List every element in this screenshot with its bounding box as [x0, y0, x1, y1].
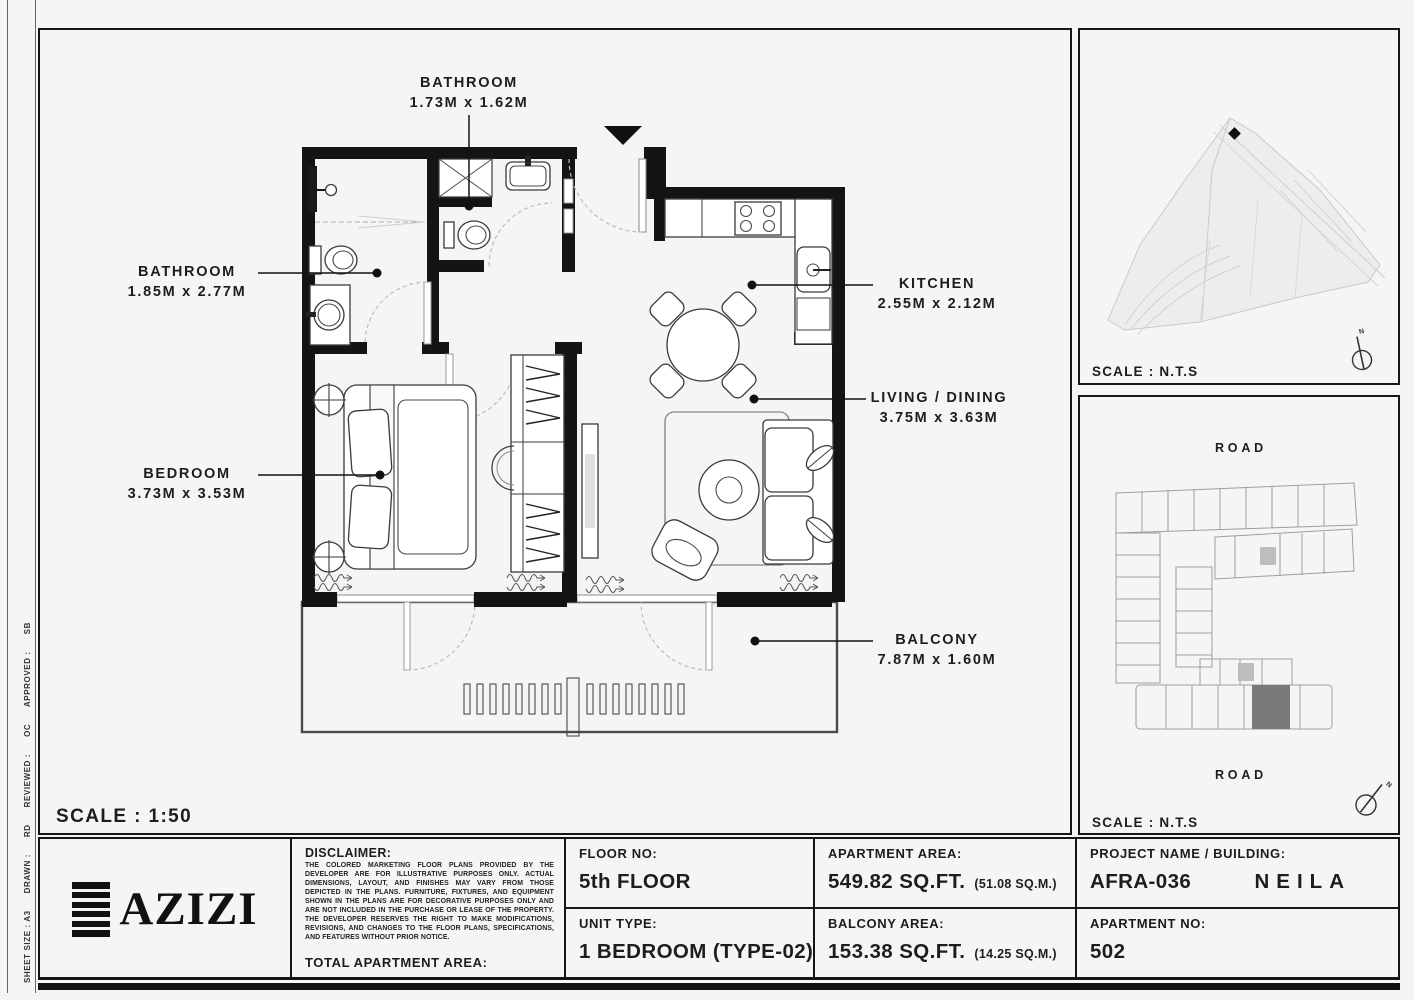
bed-icon: [344, 385, 476, 569]
sofa-icon: [763, 420, 838, 564]
svg-text:KITCHEN: KITCHEN: [899, 276, 975, 292]
logo-text: AZIZI: [119, 886, 257, 933]
curtain-symbol: [780, 575, 818, 591]
balcony-area-label: BALCONY AREA:: [828, 916, 1062, 931]
bathroom-door-leaf: [424, 282, 431, 344]
floor-plan-drawing: BATHROOM 1.73M x 1.62M BATHROOM 1.85M x …: [40, 30, 1069, 832]
sheet-meta-text: SHEET SIZE : A3 DRAWN : RD REVIEWED : OC…: [23, 622, 32, 983]
bedside-table-icon: [312, 540, 346, 574]
coffee-table-icon: [699, 460, 759, 520]
title-block: AZIZI FLOOR NO: 5th FLOOR APARTMENT AREA…: [38, 837, 1400, 980]
svg-text:1.85M x 2.77M: 1.85M x 2.77M: [128, 284, 247, 300]
armchair-icon: [648, 516, 723, 585]
floor-no-label: FLOOR NO:: [579, 846, 800, 861]
entrance-arrow-icon: [604, 126, 642, 145]
dining-table-icon: [667, 309, 739, 381]
site-map-panel: N SCALE : N.T.S: [1078, 28, 1400, 385]
disclaimer-cell: DISCLAIMER: THE COLORED MARKETING FLOOR …: [290, 839, 564, 977]
unit-type-value: 1 BEDROOM (TYPE-02): [579, 940, 800, 964]
entrance-door-leaf: [639, 159, 646, 232]
svg-text:LIVING / DINING: LIVING / DINING: [871, 390, 1008, 406]
svg-text:N: N: [1384, 781, 1392, 790]
plan-scale-label: SCALE : 1:50: [56, 806, 192, 827]
sink-icon: [506, 156, 550, 190]
floor-no-value: 5th FLOOR: [579, 870, 800, 894]
site-map-drawing: N SCALE : N.T.S: [1080, 30, 1398, 383]
svg-text:BATHROOM: BATHROOM: [138, 264, 236, 280]
core-block: [1260, 547, 1276, 565]
wall-niche: [564, 209, 573, 233]
living-room-furniture: [582, 412, 838, 584]
shower-icon: [308, 166, 317, 212]
svg-text:7.87M x 1.60M: 7.87M x 1.60M: [878, 652, 997, 668]
azizi-bars-icon: [72, 882, 110, 936]
sink-icon: [306, 285, 350, 345]
service-shaft: [439, 159, 492, 197]
north-compass-icon: N: [1352, 773, 1394, 819]
apartment-area-cell: APARTMENT AREA: 549.82 SQ.FT.(51.08 SQ.M…: [813, 839, 1075, 907]
road-label-bottom: ROAD: [1215, 768, 1267, 782]
bedroom-slider-door: [337, 595, 474, 602]
core-block: [1238, 663, 1254, 681]
sheet-bottom-rule: [38, 983, 1400, 990]
svg-text:1.73M x 1.62M: 1.73M x 1.62M: [410, 95, 529, 111]
svg-text:BEDROOM: BEDROOM: [143, 466, 231, 482]
balcony-area-cell: BALCONY AREA: 153.38 SQ.FT.(14.25 SQ.M.): [813, 907, 1075, 977]
curtain-symbol: [314, 575, 352, 591]
bathroom-left-fixtures: [306, 166, 425, 345]
project-name-label: PROJECT NAME / BUILDING:: [1090, 846, 1385, 861]
balcony: [302, 602, 837, 736]
developer-logo: AZIZI: [40, 839, 290, 977]
bedroom-furniture: [312, 355, 564, 574]
project-name-cell: PROJECT NAME / BUILDING: AFRA-036NEILA: [1075, 839, 1398, 907]
disclaimer-label: DISCLAIMER:: [305, 846, 554, 860]
apartment-area-label: APARTMENT AREA:: [828, 846, 1062, 861]
floor-plan-sheet: SHEET SIZE : A3 DRAWN : RD REVIEWED : OC…: [0, 0, 1414, 1000]
balcony-area-value: 153.38 SQ.FT.: [828, 940, 965, 963]
svg-text:BATHROOM: BATHROOM: [420, 75, 518, 91]
disclaimer-text: THE COLORED MARKETING FLOOR PLANS PROVID…: [305, 862, 554, 943]
toilet-icon: [444, 221, 490, 249]
entrance: [569, 126, 646, 232]
building-name-value: NEILA: [1255, 870, 1352, 894]
wardrobe-icon: [492, 355, 564, 572]
balcony-louver: [464, 678, 684, 736]
road-label-top: ROAD: [1215, 441, 1267, 455]
balcony-door-leaf: [706, 602, 712, 670]
label-kitchen: KITCHEN 2.55M x 2.12M: [748, 276, 997, 312]
label-balcony: BALCONY 7.87M x 1.60M: [751, 632, 997, 668]
key-plan-panel: ROAD ROAD N: [1078, 395, 1400, 835]
building-outline: [1116, 483, 1357, 729]
svg-text:3.73M x 3.53M: 3.73M x 3.53M: [128, 486, 247, 502]
floor-no-cell: FLOOR NO: 5th FLOOR: [564, 839, 813, 907]
balcony-area-metric: (14.25 SQ.M.): [974, 947, 1056, 961]
apartment-no-label: APARTMENT NO:: [1090, 916, 1385, 931]
apartment-no-cell: APARTMENT NO: 502: [1075, 907, 1398, 977]
curtain-symbol: [586, 577, 624, 593]
living-slider-door: [577, 595, 717, 602]
curtain-symbol: [507, 575, 545, 591]
svg-text:3.75M x 3.63M: 3.75M x 3.63M: [880, 410, 999, 426]
tv-unit-icon: [582, 424, 598, 558]
svg-text:N: N: [1358, 328, 1364, 336]
wall-niche: [564, 179, 573, 203]
balcony-door-leaf: [404, 602, 410, 670]
unit-type-cell: UNIT TYPE: 1 BEDROOM (TYPE-02): [564, 907, 813, 977]
sheet-side-strip: SHEET SIZE : A3 DRAWN : RD REVIEWED : OC…: [7, 0, 36, 993]
unit-type-label: UNIT TYPE:: [579, 916, 800, 931]
site-map-scale-label: SCALE : N.T.S: [1092, 364, 1198, 379]
bedside-table-icon: [312, 383, 346, 417]
apartment-no-value: 502: [1090, 940, 1385, 964]
highlighted-unit: [1252, 685, 1290, 729]
key-plan-drawing: ROAD ROAD N: [1080, 397, 1398, 833]
dining-set: [647, 289, 759, 401]
apartment-area-value: 549.82 SQ.FT.: [828, 870, 965, 893]
key-plan-scale-label: SCALE : N.T.S: [1092, 815, 1198, 830]
svg-text:2.55M x 2.12M: 2.55M x 2.12M: [878, 296, 997, 312]
stove-icon: [735, 202, 781, 235]
total-area-label: TOTAL APARTMENT AREA:: [305, 955, 554, 970]
svg-text:BALCONY: BALCONY: [895, 632, 979, 648]
toilet-icon: [309, 246, 357, 274]
apartment-area-metric: (51.08 SQ.M.): [974, 877, 1056, 891]
project-name-value: AFRA-036: [1090, 870, 1191, 894]
floor-plan-panel: BATHROOM 1.73M x 1.62M BATHROOM 1.85M x …: [38, 28, 1072, 835]
north-compass-icon: N: [1346, 328, 1373, 372]
